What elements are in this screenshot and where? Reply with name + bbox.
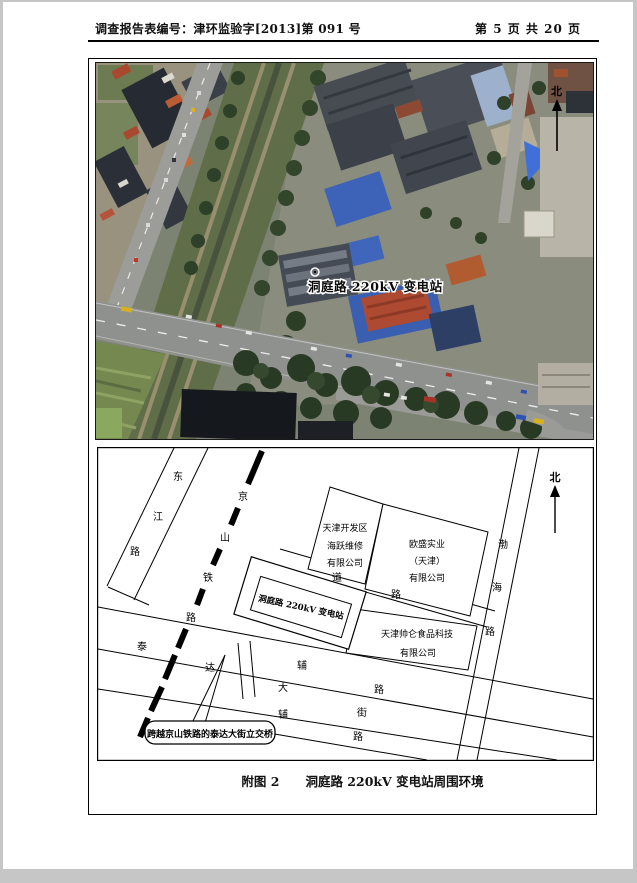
road-bohai-char: 海 <box>492 581 502 594</box>
overpass-callout-text: 跨越京山铁路的泰达大街立交桥 <box>147 728 274 740</box>
report-number: 调查报告表编号：津环监验字[2013]第 091 号 <box>95 20 425 37</box>
upper-aux-road-char: 辅 <box>297 659 307 672</box>
railway-char: 铁 <box>203 571 213 584</box>
figure-number: 附图 2 <box>241 774 279 789</box>
figure-caption: 附图 2洞庭路 220kV 变电站周围环境 <box>89 771 596 790</box>
railway-char: 京 <box>238 490 248 503</box>
map-north-label: 北 <box>550 470 561 484</box>
road-taida-char: 泰 <box>137 640 147 653</box>
railway-char: 路 <box>186 611 196 624</box>
schematic-graphic: 东 江 路 京 山 铁 路 <box>97 447 594 761</box>
header-rule <box>88 40 599 42</box>
ousheng-label-line: （天津） <box>409 556 445 567</box>
road-taida-char: 大 <box>278 681 288 694</box>
upper-aux-road-char: 路 <box>374 683 384 696</box>
document-page: 调查报告表编号：津环监验字[2013]第 091 号 第 5 页 共 20 页 <box>3 2 633 869</box>
lower-aux-road-char: 路 <box>353 730 363 743</box>
middle-road-char: 道 <box>332 571 342 584</box>
road-bohai-char: 渤 <box>498 538 508 551</box>
road-bohai-char: 路 <box>485 625 495 638</box>
road-dongjiang-char: 路 <box>130 545 140 558</box>
road-taida-char: 街 <box>357 706 367 719</box>
lower-aux-road-char: 辅 <box>278 708 288 721</box>
page-number: 第 5 页 共 20 页 <box>475 20 581 37</box>
road-dongjiang-char: 东 <box>173 470 183 483</box>
haiyue-label-line: 海跃维修 <box>327 540 363 552</box>
figure-frame: 北 洞庭路 220kV 变电站 <box>88 58 597 815</box>
haiyue-label-line: 有限公司 <box>327 557 363 569</box>
shuailun-label-line: 有限公司 <box>400 647 436 659</box>
satellite-image: 北 洞庭路 220kV 变电站 <box>95 62 594 440</box>
road-dongjiang-char: 江 <box>153 511 163 523</box>
ousheng-label-line: 有限公司 <box>409 572 445 584</box>
ousheng-label-line: 欧盛实业 <box>409 538 445 550</box>
haiyue-label-line: 天津开发区 <box>322 522 367 534</box>
figure-title: 洞庭路 220kV 变电站周围环境 <box>305 774 483 789</box>
satellite-station-label: 洞庭路 220kV 变电站 <box>308 279 443 294</box>
railway-char: 山 <box>220 532 230 544</box>
road-taida-char: 达 <box>205 662 215 674</box>
satellite-north-label: 北 <box>551 84 562 98</box>
middle-road-char: 路 <box>391 588 401 601</box>
satellite-graphic: 北 洞庭路 220kV 变电站 <box>96 63 593 439</box>
shuailun-label-line: 天津帅仑食品科技 <box>381 628 453 640</box>
schematic-map: 东 江 路 京 山 铁 路 <box>97 447 594 761</box>
